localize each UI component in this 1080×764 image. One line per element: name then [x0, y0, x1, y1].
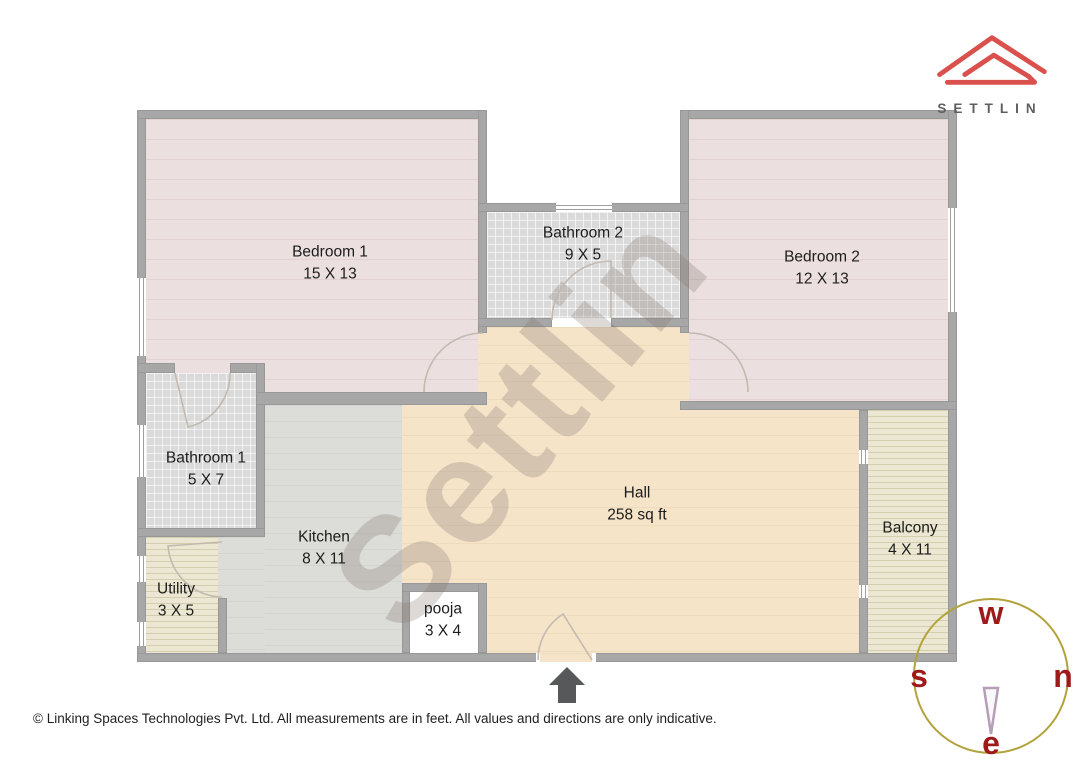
room-dims: 15 X 13 — [292, 263, 368, 285]
room-label-bedroom2: Bedroom 2 12 X 13 — [784, 246, 860, 289]
room-dims: 5 X 7 — [166, 469, 246, 491]
room-name: Bedroom 1 — [292, 241, 368, 263]
window-bedroom2-right — [948, 208, 957, 312]
room-dims: 3 X 4 — [424, 620, 462, 642]
room-name: Utility — [157, 578, 195, 600]
compass-label-south: s — [910, 658, 928, 694]
wall-below-bathroom1 — [137, 528, 265, 537]
compass-label-west: w — [978, 595, 1004, 631]
wall-utility-right — [218, 598, 227, 653]
wall-outer-top-right — [680, 110, 957, 119]
room-label-hall: Hall 258 sq ft — [607, 482, 666, 525]
window-utility-left-2 — [137, 622, 146, 646]
wall-outer-top-left — [137, 110, 487, 119]
room-dims: 8 X 11 — [298, 548, 350, 570]
room-name: Hall — [607, 482, 666, 504]
room-dims: 12 X 13 — [784, 268, 860, 290]
room-label-balcony: Balcony 4 X 11 — [882, 517, 937, 560]
room-label-utility: Utility 3 X 5 — [157, 578, 195, 621]
wall-bathroom1-right — [256, 363, 265, 537]
entrance-jamb-left — [536, 653, 540, 662]
wall-bedroom2-bottom — [680, 401, 957, 410]
room-name: Bathroom 2 — [543, 222, 623, 244]
room-dims: 258 sq ft — [607, 504, 666, 526]
compass-label-north: n — [1053, 658, 1073, 694]
room-name: Kitchen — [298, 526, 350, 548]
entrance-arrow-shape — [549, 667, 585, 703]
room-label-kitchen: Kitchen 8 X 11 — [298, 526, 350, 569]
wall-bathroom1-top-left — [137, 363, 175, 373]
footer-text: © Linking Spaces Technologies Pvt. Ltd. … — [33, 711, 717, 726]
room-name: Bedroom 2 — [784, 246, 860, 268]
brand-name: SETTLIN — [930, 101, 1050, 116]
entrance-opening — [540, 653, 592, 662]
window-utility-left-1 — [137, 556, 146, 582]
floor-plan-page: Settlin Bedroom 1 15 X 13 Bathroom 2 9 X… — [0, 0, 1080, 764]
entrance-jamb-right — [592, 653, 596, 662]
window-bedroom1-left — [137, 278, 146, 356]
room-name: Bathroom 1 — [166, 447, 246, 469]
room-dims: 4 X 11 — [882, 539, 937, 561]
window-balcony-slider-2 — [859, 585, 868, 598]
room-label-bathroom2: Bathroom 2 9 X 5 — [543, 222, 623, 265]
wall-outer-right — [948, 110, 957, 662]
compass: w n s e — [903, 588, 1080, 764]
room-dims: 9 X 5 — [543, 244, 623, 266]
room-label-pooja: pooja 3 X 4 — [424, 598, 462, 641]
entrance-arrow-icon — [546, 666, 590, 706]
logo-roof-icon — [931, 28, 1049, 92]
room-name: Balcony — [882, 517, 937, 539]
room-dims: 3 X 5 — [157, 600, 195, 622]
wall-balcony-divider — [859, 410, 868, 653]
window-bathroom1-left — [137, 425, 146, 477]
room-label-bathroom1: Bathroom 1 5 X 7 — [166, 447, 246, 490]
room-label-bedroom1: Bedroom 1 15 X 13 — [292, 241, 368, 284]
wall-bedroom1-right — [478, 110, 487, 333]
room-name: pooja — [424, 598, 462, 620]
window-balcony-slider-1 — [859, 450, 868, 464]
settlin-logo: SETTLIN — [930, 28, 1050, 116]
